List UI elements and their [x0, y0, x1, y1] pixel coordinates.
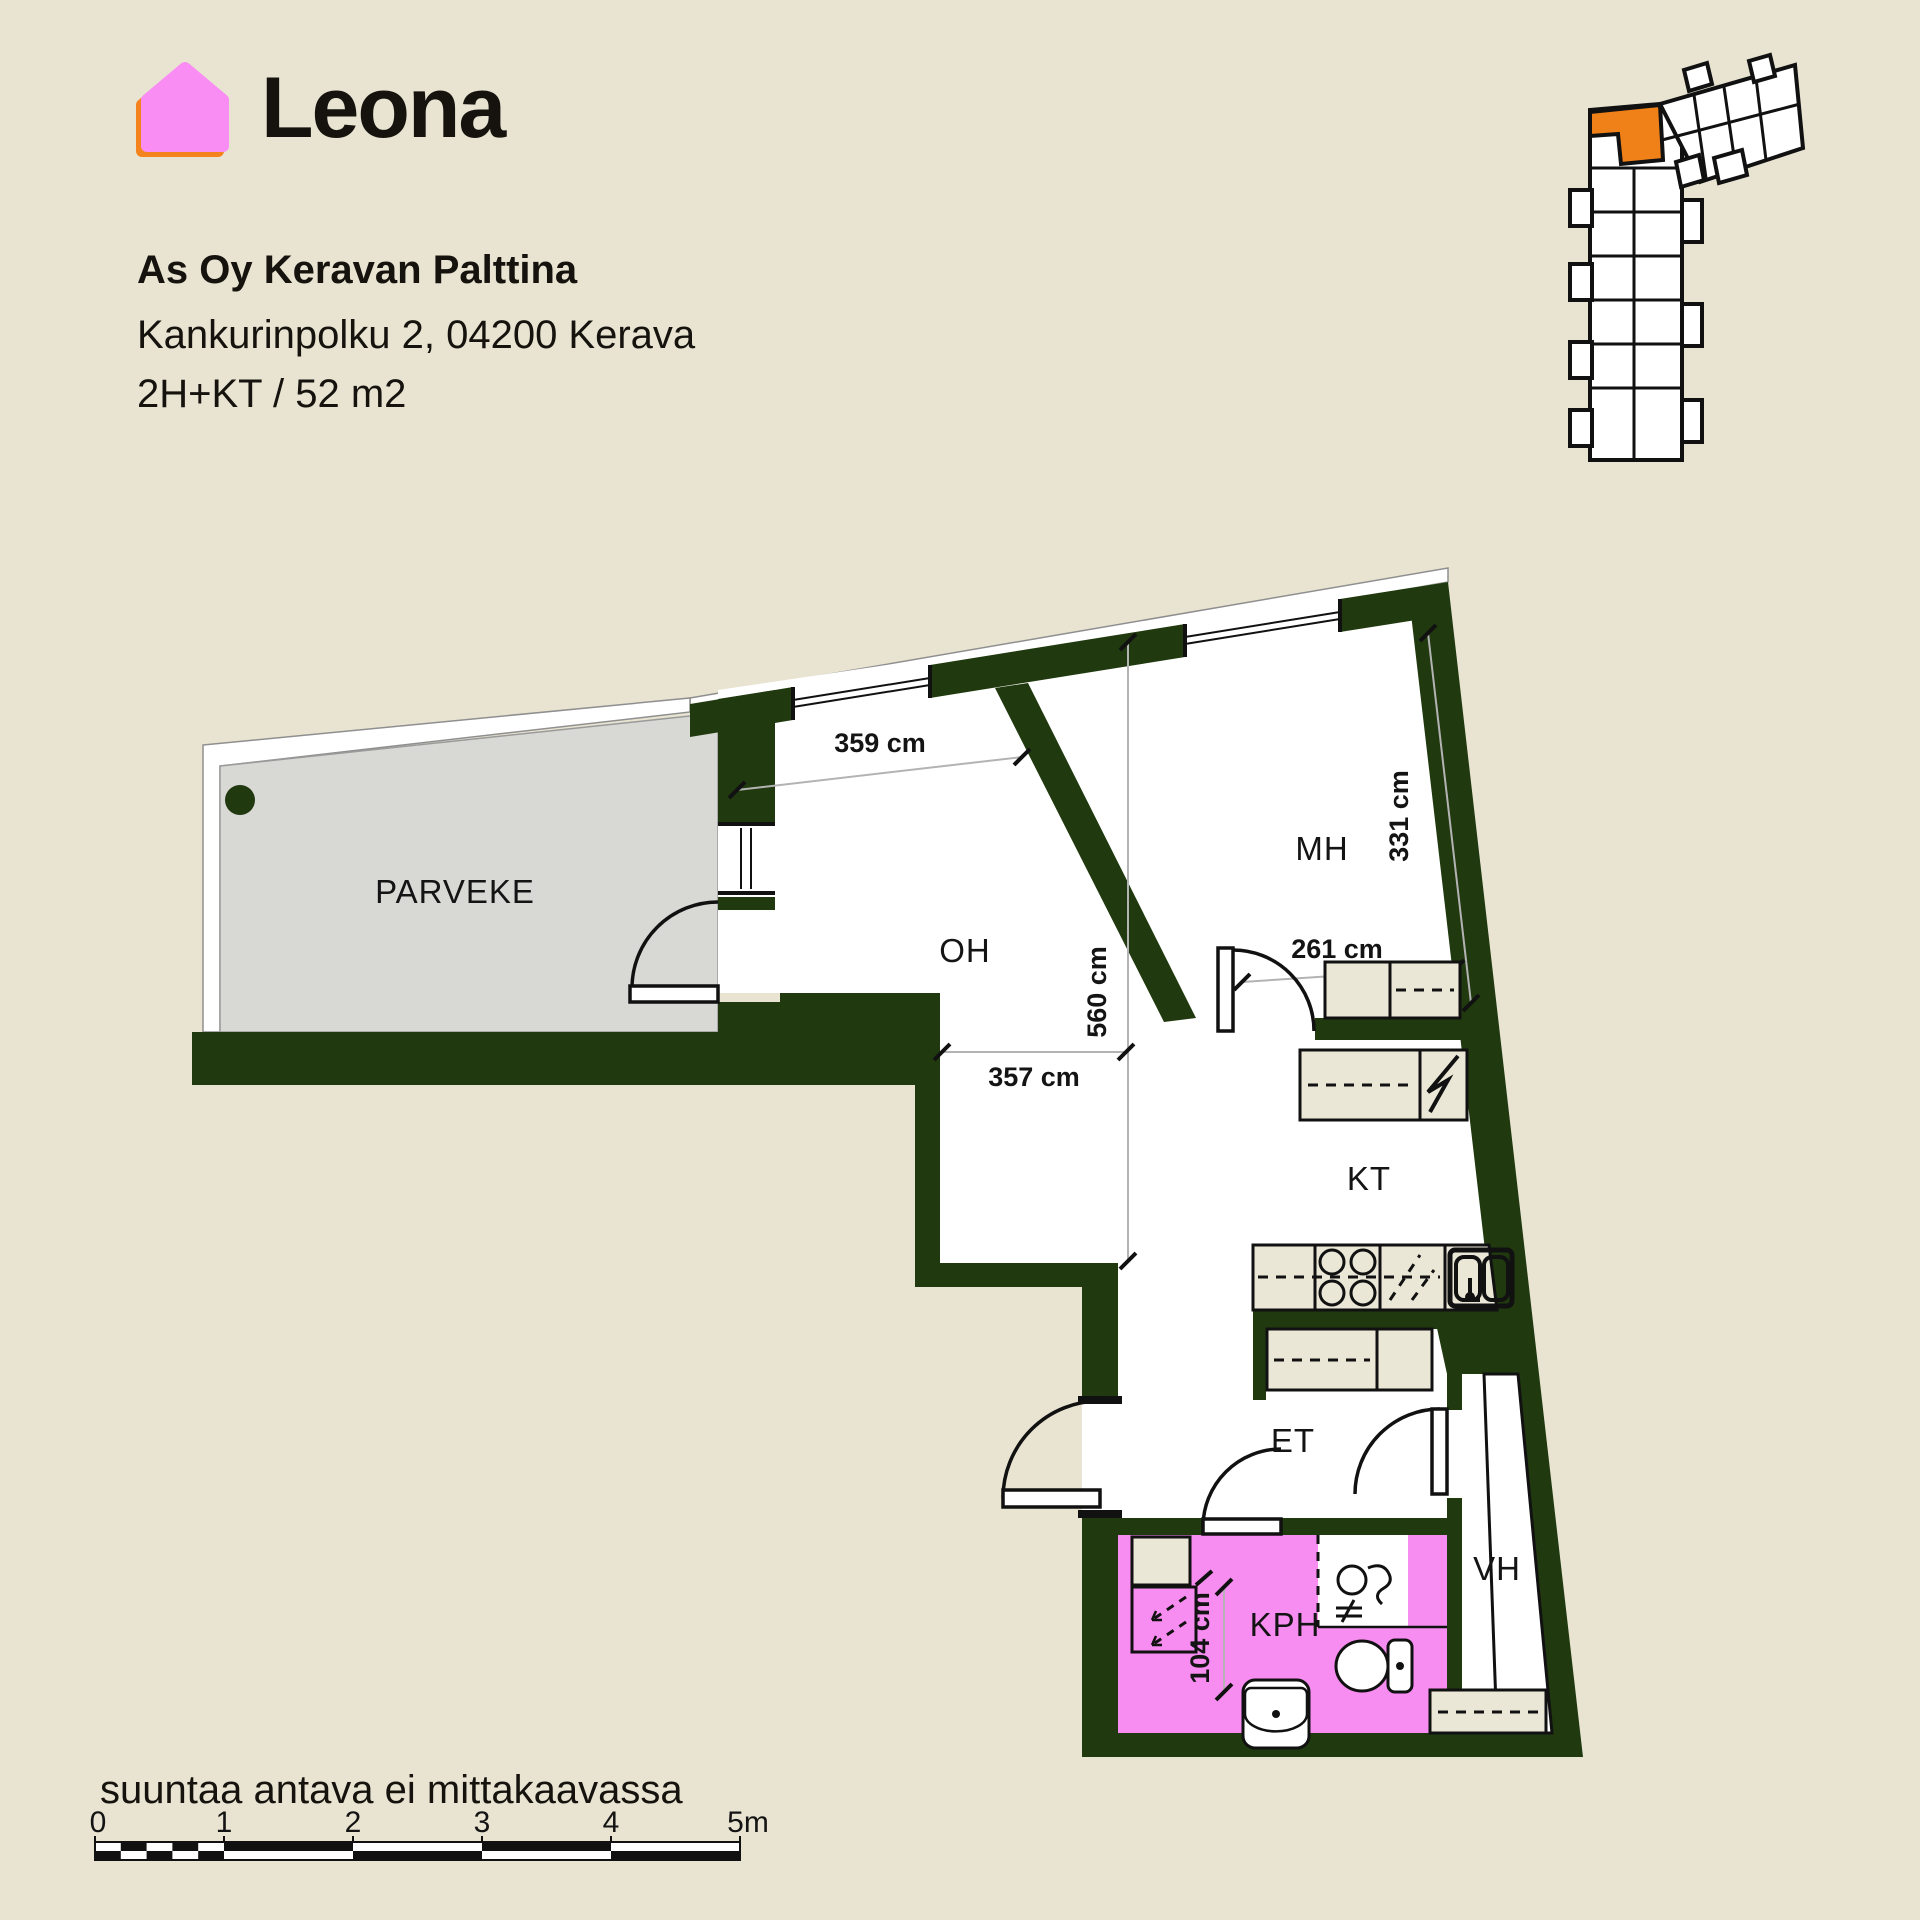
dimension-label-mh-width: 261 cm	[1291, 934, 1383, 964]
scale-label-5m: 5m	[727, 1806, 769, 1839]
washing-machine-icon	[1132, 1537, 1190, 1585]
toilet-icon	[1336, 1640, 1412, 1692]
site-plan	[1570, 55, 1803, 460]
dimension-label-oh-lower-width: 357 cm	[988, 1062, 1080, 1092]
scale-bar: 0 1 2 3 4 5m	[90, 1806, 769, 1860]
washbasin-icon	[1243, 1680, 1309, 1748]
room-label-vh: VH	[1473, 1550, 1521, 1587]
dimension-label-mh-height: 331 cm	[1384, 770, 1414, 862]
disclaimer-text: suuntaa antava ei mittakaavassa	[100, 1768, 683, 1813]
kitchen-counter	[1253, 1245, 1512, 1310]
dimension-label-oh-height: 560 cm	[1082, 946, 1112, 1038]
room-label-oh: OH	[939, 932, 991, 969]
room-label-et: ET	[1271, 1422, 1315, 1459]
floorplan-drawing: PARVEKE OH MH KT ET KPH VH 359 cm 560 cm…	[0, 0, 1920, 1920]
hall-cabinet-icon	[1267, 1329, 1432, 1390]
room-label-parveke: PARVEKE	[375, 873, 535, 910]
balcony-column	[225, 785, 255, 815]
balcony-wall-window-icon	[718, 824, 775, 893]
room-label-kt: KT	[1347, 1160, 1391, 1197]
floorplan-page: Leona As Oy Keravan Palttina Kankurinpol…	[0, 0, 1920, 1920]
dimension-label-oh-width: 359 cm	[834, 728, 926, 758]
room-label-kph: KPH	[1250, 1606, 1321, 1643]
room-label-mh: MH	[1295, 830, 1348, 867]
kitchen-tall-cabinet-icon	[1300, 1050, 1467, 1120]
dimension-label-kph-width: 104 cm	[1185, 1592, 1215, 1684]
bedroom-wardrobe-icon	[1325, 962, 1460, 1018]
